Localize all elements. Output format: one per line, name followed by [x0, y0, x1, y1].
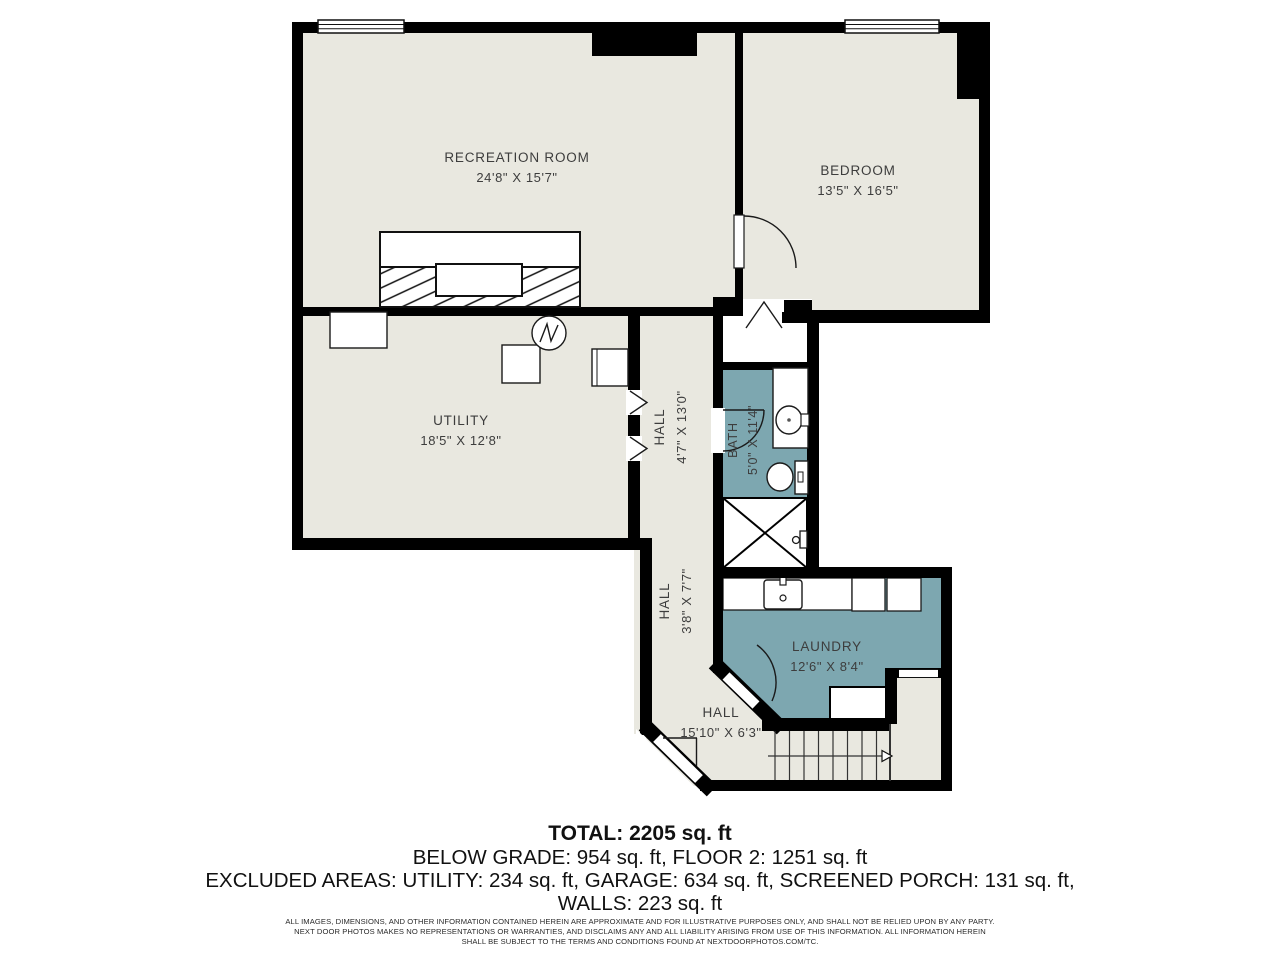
label-recreation-room: RECREATION ROOM 24'8" X 15'7" [444, 148, 589, 188]
room-name: BEDROOM [817, 161, 898, 181]
toilet [767, 461, 808, 494]
landing-opening [899, 669, 938, 678]
room-dims: 15'10" X 6'3" [680, 723, 761, 743]
label-bath: BATH 5'0" X 11'4" [723, 405, 763, 475]
total-area: TOTAL: 2205 sq. ft [0, 822, 1280, 846]
room-name: UTILITY [420, 411, 501, 431]
label-hall-upper: HALL 4'7" X 13'0" [649, 390, 693, 463]
room-name: HALL [654, 568, 676, 634]
label-hall-lower: HALL 15'10" X 6'3" [680, 703, 761, 743]
shower [723, 498, 807, 568]
window-recreation [318, 20, 404, 33]
label-bedroom: BEDROOM 13'5" X 16'5" [817, 161, 898, 201]
room-dims: 5'0" X 11'4" [743, 405, 763, 475]
recreation-fixture [380, 232, 580, 307]
grade-areas: BELOW GRADE: 954 sq. ft, FLOOR 2: 1251 s… [0, 846, 1280, 869]
area-summary: TOTAL: 2205 sq. ft BELOW GRADE: 954 sq. … [0, 822, 1280, 915]
window-bedroom [845, 20, 939, 33]
room-dims: 13'5" X 16'5" [817, 181, 898, 201]
excluded-areas: EXCLUDED AREAS: UTILITY: 234 sq. ft, GAR… [0, 869, 1280, 892]
disclaimer-text: ALL IMAGES, DIMENSIONS, AND OTHER INFORM… [0, 917, 1280, 947]
room-dims: 24'8" X 15'7" [444, 168, 589, 188]
label-laundry: LAUNDRY 12'6" X 8'4" [790, 637, 863, 677]
room-name: HALL [680, 703, 761, 723]
room-dims: 12'6" X 8'4" [790, 657, 863, 677]
room-dims: 18'5" X 12'8" [420, 431, 501, 451]
room-name: HALL [649, 390, 671, 463]
label-hall-mid: HALL 3'8" X 7'7" [654, 568, 698, 634]
label-utility: UTILITY 18'5" X 12'8" [420, 411, 501, 451]
vanity [773, 368, 809, 448]
floor-plan-page: RECREATION ROOM 24'8" X 15'7" BEDROOM 13… [0, 0, 1280, 960]
room-dims: 3'8" X 7'7" [676, 568, 698, 634]
room-name: BATH [723, 405, 743, 475]
room-name: LAUNDRY [790, 637, 863, 657]
walls-area: WALLS: 223 sq. ft [0, 892, 1280, 915]
floor-plan-drawing [0, 0, 1280, 960]
room-name: RECREATION ROOM [444, 148, 589, 168]
room-dims: 4'7" X 13'0" [671, 390, 693, 463]
